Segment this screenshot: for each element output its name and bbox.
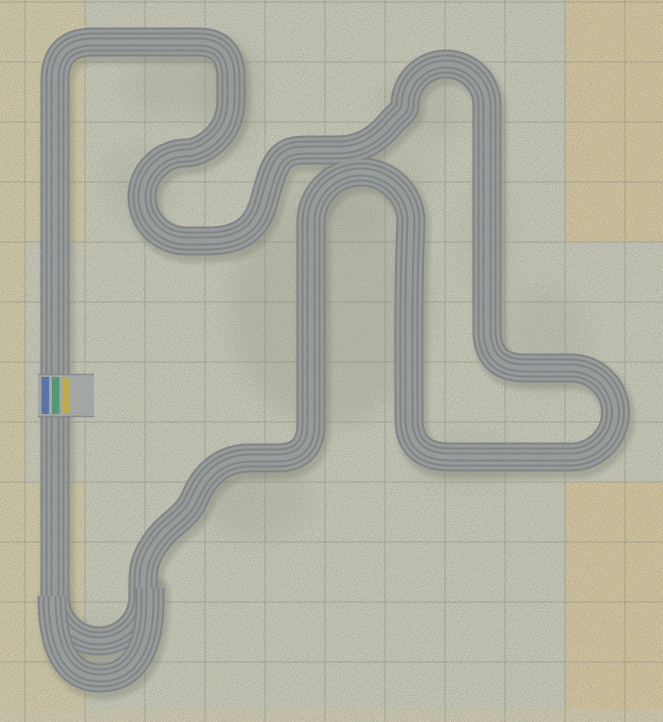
board-tile: [0, 302, 25, 362]
board-tile: [625, 182, 663, 242]
board-tile: [565, 482, 625, 542]
board-tile: [625, 62, 663, 122]
board-tile: [0, 362, 25, 422]
board-tile: [0, 62, 25, 122]
track-board: [0, 0, 663, 722]
start-finish-line[interactable]: [38, 374, 94, 417]
board-tile: [0, 542, 25, 602]
board-tile: [565, 0, 625, 62]
board-tile: [625, 122, 663, 182]
board-tile: [625, 482, 663, 542]
board-tile: [0, 602, 25, 662]
board-tile: [0, 182, 25, 242]
track-scene[interactable]: [0, 0, 663, 722]
board-tile: [565, 602, 625, 662]
blue-lane-stripe: [42, 377, 50, 414]
board-tile: [0, 422, 25, 482]
board-tile: [565, 182, 625, 242]
board-tile: [565, 542, 625, 602]
yellow-lane-stripe: [63, 377, 70, 414]
board-tile: [0, 482, 25, 542]
board-tile: [625, 542, 663, 602]
board-tile: [565, 122, 625, 182]
board-tile: [0, 242, 25, 302]
board-tile: [625, 0, 663, 62]
board-tile: [625, 602, 663, 662]
board-tile: [0, 0, 25, 62]
board-tile: [0, 122, 25, 182]
green-lane-stripe: [52, 377, 60, 414]
board-tile: [565, 62, 625, 122]
